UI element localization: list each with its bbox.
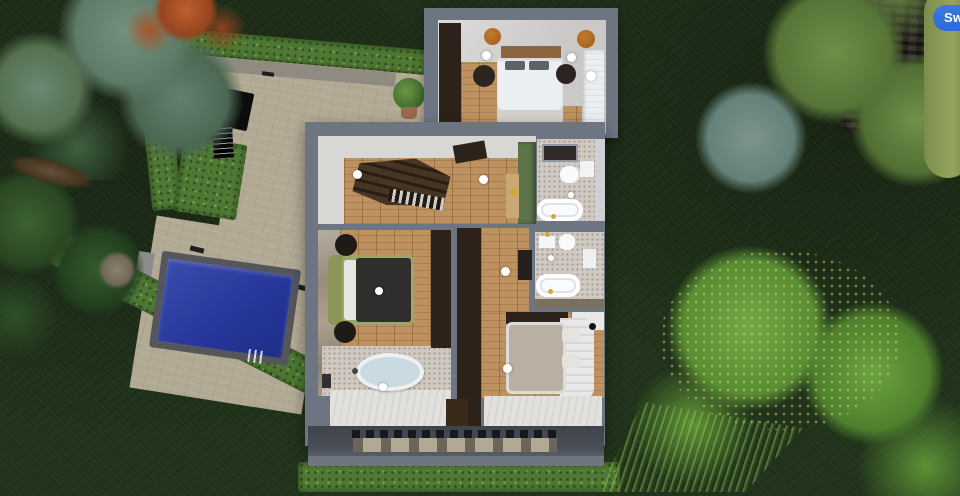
green-accent-wall <box>518 142 536 224</box>
pillow <box>562 354 580 368</box>
shower <box>542 144 578 162</box>
ceiling-light <box>501 267 510 276</box>
bathroom-window <box>580 161 594 177</box>
small-stool <box>322 374 331 388</box>
duvet-dark <box>356 258 411 322</box>
stool-orange <box>577 30 595 48</box>
lamp <box>567 53 576 62</box>
vanity <box>506 174 519 218</box>
closet-white <box>582 50 604 132</box>
nightstand <box>334 321 356 343</box>
balcony-ledge <box>308 456 604 466</box>
tv-panel <box>518 250 532 280</box>
wardrobe <box>431 230 451 348</box>
tub-faucet <box>548 289 553 294</box>
tree-bottom-right <box>596 208 960 496</box>
tub-faucet <box>352 368 358 374</box>
bathtub <box>537 199 583 221</box>
swimming-pool <box>149 251 301 367</box>
pool-ladder <box>247 349 265 364</box>
ceiling-light <box>375 287 383 295</box>
potted-plant <box>393 78 425 110</box>
fallen-branch <box>0 134 114 209</box>
plant-pot <box>401 107 417 119</box>
lamp <box>482 51 491 60</box>
nightstand <box>335 234 357 256</box>
stool-orange <box>484 28 501 45</box>
vanity-sink <box>510 188 518 196</box>
wardrobe-wall <box>457 228 481 428</box>
master-carpet <box>330 390 452 428</box>
freestanding-tub <box>356 353 424 391</box>
bathroom-1-wall <box>595 139 605 221</box>
bathroom-cabinet <box>583 249 596 268</box>
sink <box>539 236 555 248</box>
tree-trunk <box>840 0 938 137</box>
toilet <box>559 234 575 250</box>
bedroom-2-carpet <box>484 396 602 428</box>
balcony-door <box>446 399 468 429</box>
nightstand <box>556 64 576 84</box>
pillow <box>529 61 549 70</box>
switch-view-button[interactable]: Swi <box>933 5 960 31</box>
toilet <box>560 166 578 183</box>
tub-drain <box>379 383 387 391</box>
bathtub <box>536 274 580 297</box>
pillow <box>505 61 525 70</box>
hedge-below-house <box>298 462 620 492</box>
bed-duvet <box>506 322 566 394</box>
floor-light <box>568 192 574 198</box>
balcony-floor <box>353 438 557 452</box>
floor-light <box>548 255 554 261</box>
ceiling-light <box>503 364 512 373</box>
bedpost <box>589 323 596 330</box>
outdoor-steps <box>212 125 234 158</box>
ceiling-light <box>479 175 488 184</box>
ceiling-light <box>353 170 362 179</box>
balcony-railing <box>352 430 560 438</box>
ceiling-light <box>586 71 596 81</box>
tub-faucet <box>551 214 556 219</box>
sink-faucet <box>545 232 550 237</box>
tree-leaf-speckles <box>660 250 900 430</box>
hedge-corner <box>172 135 247 220</box>
nightstand <box>473 65 495 87</box>
wardrobe <box>439 23 461 132</box>
willow-fronds <box>598 382 803 492</box>
3d-floorplan-viewport[interactable]: Swi <box>0 0 960 496</box>
pillow <box>562 328 580 342</box>
